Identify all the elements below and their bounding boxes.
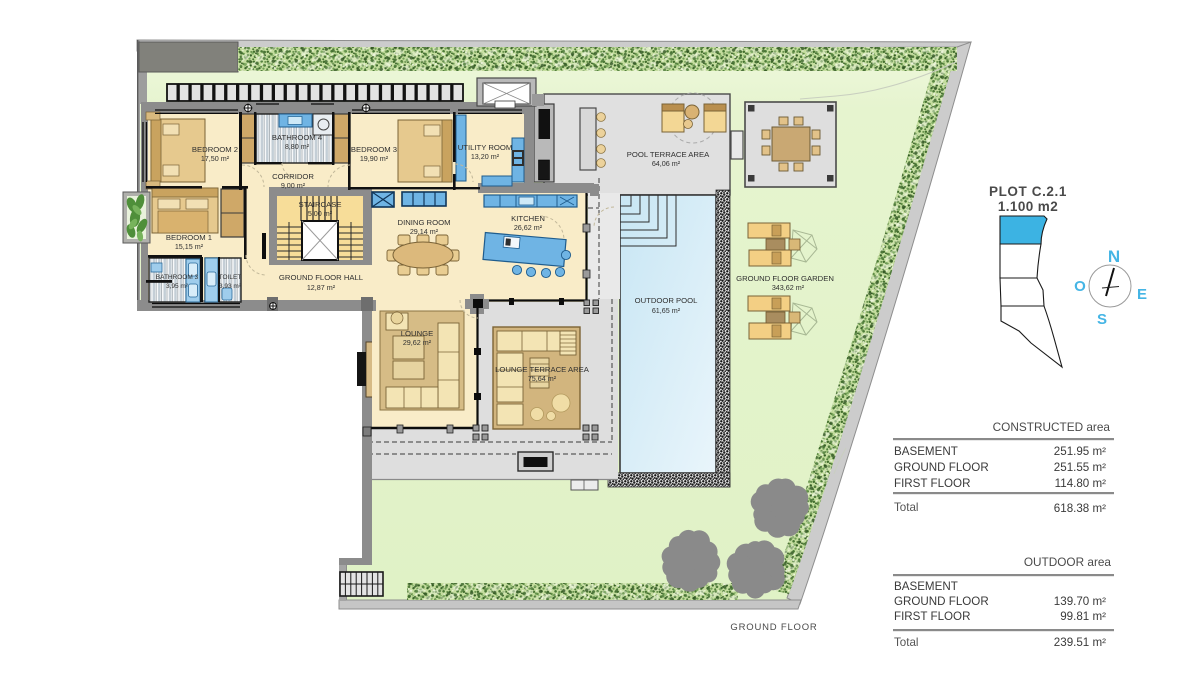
svg-text:9,00 m²: 9,00 m² xyxy=(281,181,306,190)
svg-text:114.80 m²: 114.80 m² xyxy=(1055,477,1106,490)
svg-text:STAIRCASE: STAIRCASE xyxy=(298,200,341,209)
svg-text:GROUND FLOOR: GROUND FLOOR xyxy=(894,595,989,608)
svg-text:15,15 m²: 15,15 m² xyxy=(175,242,204,251)
svg-text:1.100 m2: 1.100 m2 xyxy=(998,199,1058,214)
svg-text:GROUND FLOOR GARDEN: GROUND FLOOR GARDEN xyxy=(736,274,834,283)
svg-text:13,20 m²: 13,20 m² xyxy=(471,152,500,161)
svg-text:239.51 m²: 239.51 m² xyxy=(1054,636,1106,649)
svg-text:139.70 m²: 139.70 m² xyxy=(1054,595,1106,608)
svg-text:Total: Total xyxy=(894,501,919,514)
svg-text:251.95 m²: 251.95 m² xyxy=(1054,445,1106,458)
svg-text:S: S xyxy=(1097,311,1107,328)
svg-text:64,06 m²: 64,06 m² xyxy=(652,159,681,168)
svg-text:DINING ROOM: DINING ROOM xyxy=(398,218,451,227)
svg-text:UTILITY ROOM: UTILITY ROOM xyxy=(458,143,513,152)
svg-text:KITCHEN: KITCHEN xyxy=(511,214,545,223)
svg-text:8,80 m²: 8,80 m² xyxy=(285,142,310,151)
svg-text:BEDROOM 2: BEDROOM 2 xyxy=(192,145,238,154)
svg-text:5,00 m²: 5,00 m² xyxy=(308,209,333,218)
svg-text:OUTDOOR area: OUTDOOR area xyxy=(1024,555,1112,569)
svg-text:61,65 m²: 61,65 m² xyxy=(652,306,681,315)
svg-text:CORRIDOR: CORRIDOR xyxy=(272,172,314,181)
svg-text:BATHROOM 4: BATHROOM 4 xyxy=(272,133,323,142)
svg-text:OUTDOOR POOL: OUTDOOR POOL xyxy=(635,296,699,305)
svg-text:618.38 m²: 618.38 m² xyxy=(1054,502,1106,515)
svg-text:N: N xyxy=(1108,247,1120,266)
svg-text:LOUNGE: LOUNGE xyxy=(401,329,433,338)
svg-text:GROUND FLOOR HALL: GROUND FLOOR HALL xyxy=(279,273,364,282)
svg-text:3,93 m²: 3,93 m² xyxy=(219,283,242,290)
svg-text:GROUND FLOOR: GROUND FLOOR xyxy=(894,461,989,474)
svg-text:E: E xyxy=(1137,286,1147,303)
svg-text:BEDROOM 1: BEDROOM 1 xyxy=(166,233,212,242)
svg-text:BATHROOM 3: BATHROOM 3 xyxy=(156,274,199,281)
svg-text:29,14 m²: 29,14 m² xyxy=(410,227,439,236)
svg-text:BASEMENT: BASEMENT xyxy=(894,580,958,593)
svg-text:251.55 m²: 251.55 m² xyxy=(1054,461,1106,474)
svg-text:BASEMENT: BASEMENT xyxy=(894,445,958,458)
svg-text:29,62 m²: 29,62 m² xyxy=(403,338,432,347)
svg-text:17,50 m²: 17,50 m² xyxy=(201,154,230,163)
svg-text:Total: Total xyxy=(894,636,919,649)
svg-text:BEDROOM 3: BEDROOM 3 xyxy=(351,145,397,154)
svg-text:TOILET: TOILET xyxy=(219,274,242,281)
svg-text:26,62 m²: 26,62 m² xyxy=(514,223,543,232)
svg-text:LOUNGE TERRACE AREA: LOUNGE TERRACE AREA xyxy=(495,365,590,374)
svg-text:PLOT C.2.1: PLOT C.2.1 xyxy=(989,184,1067,199)
svg-text:O: O xyxy=(1074,278,1086,295)
svg-text:12,87 m²: 12,87 m² xyxy=(307,283,336,292)
svg-text:FIRST FLOOR: FIRST FLOOR xyxy=(894,610,970,623)
svg-text:POOL TERRACE AREA: POOL TERRACE AREA xyxy=(627,150,710,159)
svg-text:GROUND FLOOR: GROUND FLOOR xyxy=(730,622,817,633)
svg-text:75,64 m²: 75,64 m² xyxy=(528,374,557,383)
svg-text:99.81 m²: 99.81 m² xyxy=(1060,610,1106,623)
svg-text:3,95 m²: 3,95 m² xyxy=(166,283,189,290)
svg-text:FIRST FLOOR: FIRST FLOOR xyxy=(894,477,970,490)
svg-text:CONSTRUCTED area: CONSTRUCTED area xyxy=(993,420,1111,434)
svg-text:343,62 m²: 343,62 m² xyxy=(772,283,805,292)
svg-text:19,90 m²: 19,90 m² xyxy=(360,154,389,163)
